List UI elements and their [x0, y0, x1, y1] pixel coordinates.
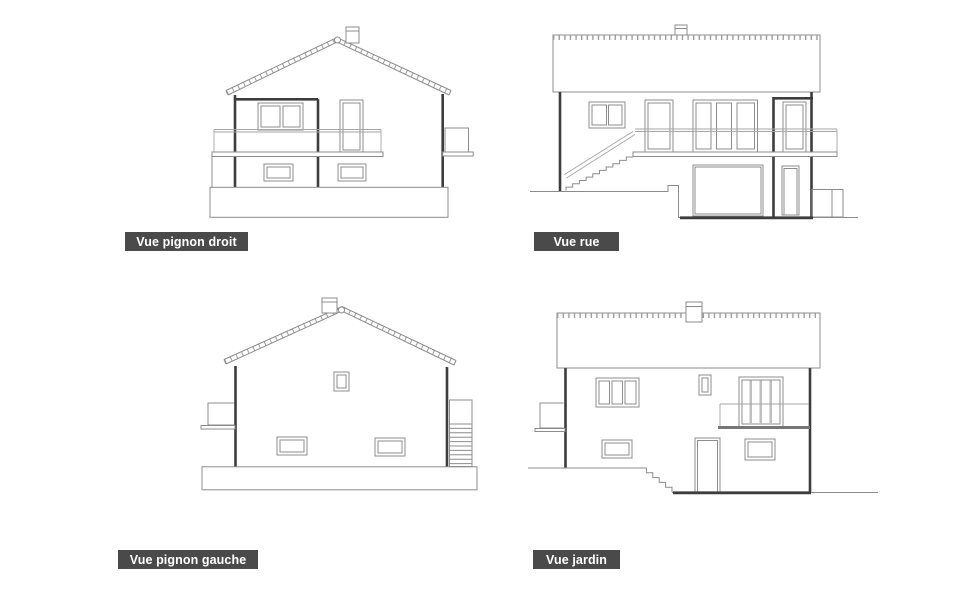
cut-walls [566, 368, 811, 493]
exterior-staircase [565, 132, 636, 191]
balcony-slab [633, 152, 837, 157]
ground-line [530, 186, 858, 218]
elevation-sheet: Vue pignon droit Vue rue Vue pignon gauc… [0, 0, 970, 600]
left-balcony [201, 403, 235, 429]
gable-roof [226, 38, 451, 96]
chimney [686, 302, 702, 322]
tall-window [340, 100, 363, 153]
elevation-drawings [0, 0, 970, 600]
balcony-railing [718, 404, 810, 429]
upper-triple-window [596, 378, 639, 407]
side-annex [812, 190, 843, 218]
label-vue-rue: Vue rue [534, 232, 619, 251]
foundation-plinth [210, 187, 448, 217]
chimney [322, 298, 345, 313]
elevation-vue-pignon-gauche [201, 298, 477, 490]
label-vue-pignon-droit: Vue pignon droit [125, 232, 248, 251]
cut-walls [236, 366, 448, 467]
label-vue-jardin: Vue jardin [533, 550, 620, 569]
label-vue-pignon-gauche: Vue pignon gauche [118, 550, 258, 569]
window-right [375, 438, 405, 456]
balcony-railing [214, 130, 381, 153]
gable-roof [224, 307, 456, 366]
elevation-vue-rue [530, 25, 858, 218]
basement-windows [264, 164, 366, 181]
chimney [335, 27, 360, 43]
elevation-vue-jardin [528, 302, 878, 493]
entry-bay-window [783, 102, 806, 152]
lower-window-left [602, 440, 632, 458]
tiled-roof [553, 35, 820, 92]
tall-window-triple [693, 100, 758, 152]
foundation-plinth [202, 467, 477, 490]
tall-window-single [645, 100, 673, 152]
ground-line [528, 468, 878, 493]
garage-door [693, 165, 763, 216]
balcony-slab [212, 152, 383, 157]
lower-window-right [745, 439, 775, 460]
side-balcony [443, 128, 474, 156]
elevation-vue-pignon-droit [210, 27, 473, 217]
chimney [675, 25, 687, 35]
small-window [699, 375, 711, 395]
entry-door [782, 166, 799, 215]
left-balcony [535, 403, 565, 432]
attic-window [334, 372, 349, 391]
side-staircase [450, 400, 473, 467]
upper-double-window [258, 103, 303, 130]
upper-double-window [589, 102, 625, 128]
balcony-door-window [739, 377, 783, 427]
window-left [277, 437, 307, 455]
garden-door [695, 438, 720, 492]
